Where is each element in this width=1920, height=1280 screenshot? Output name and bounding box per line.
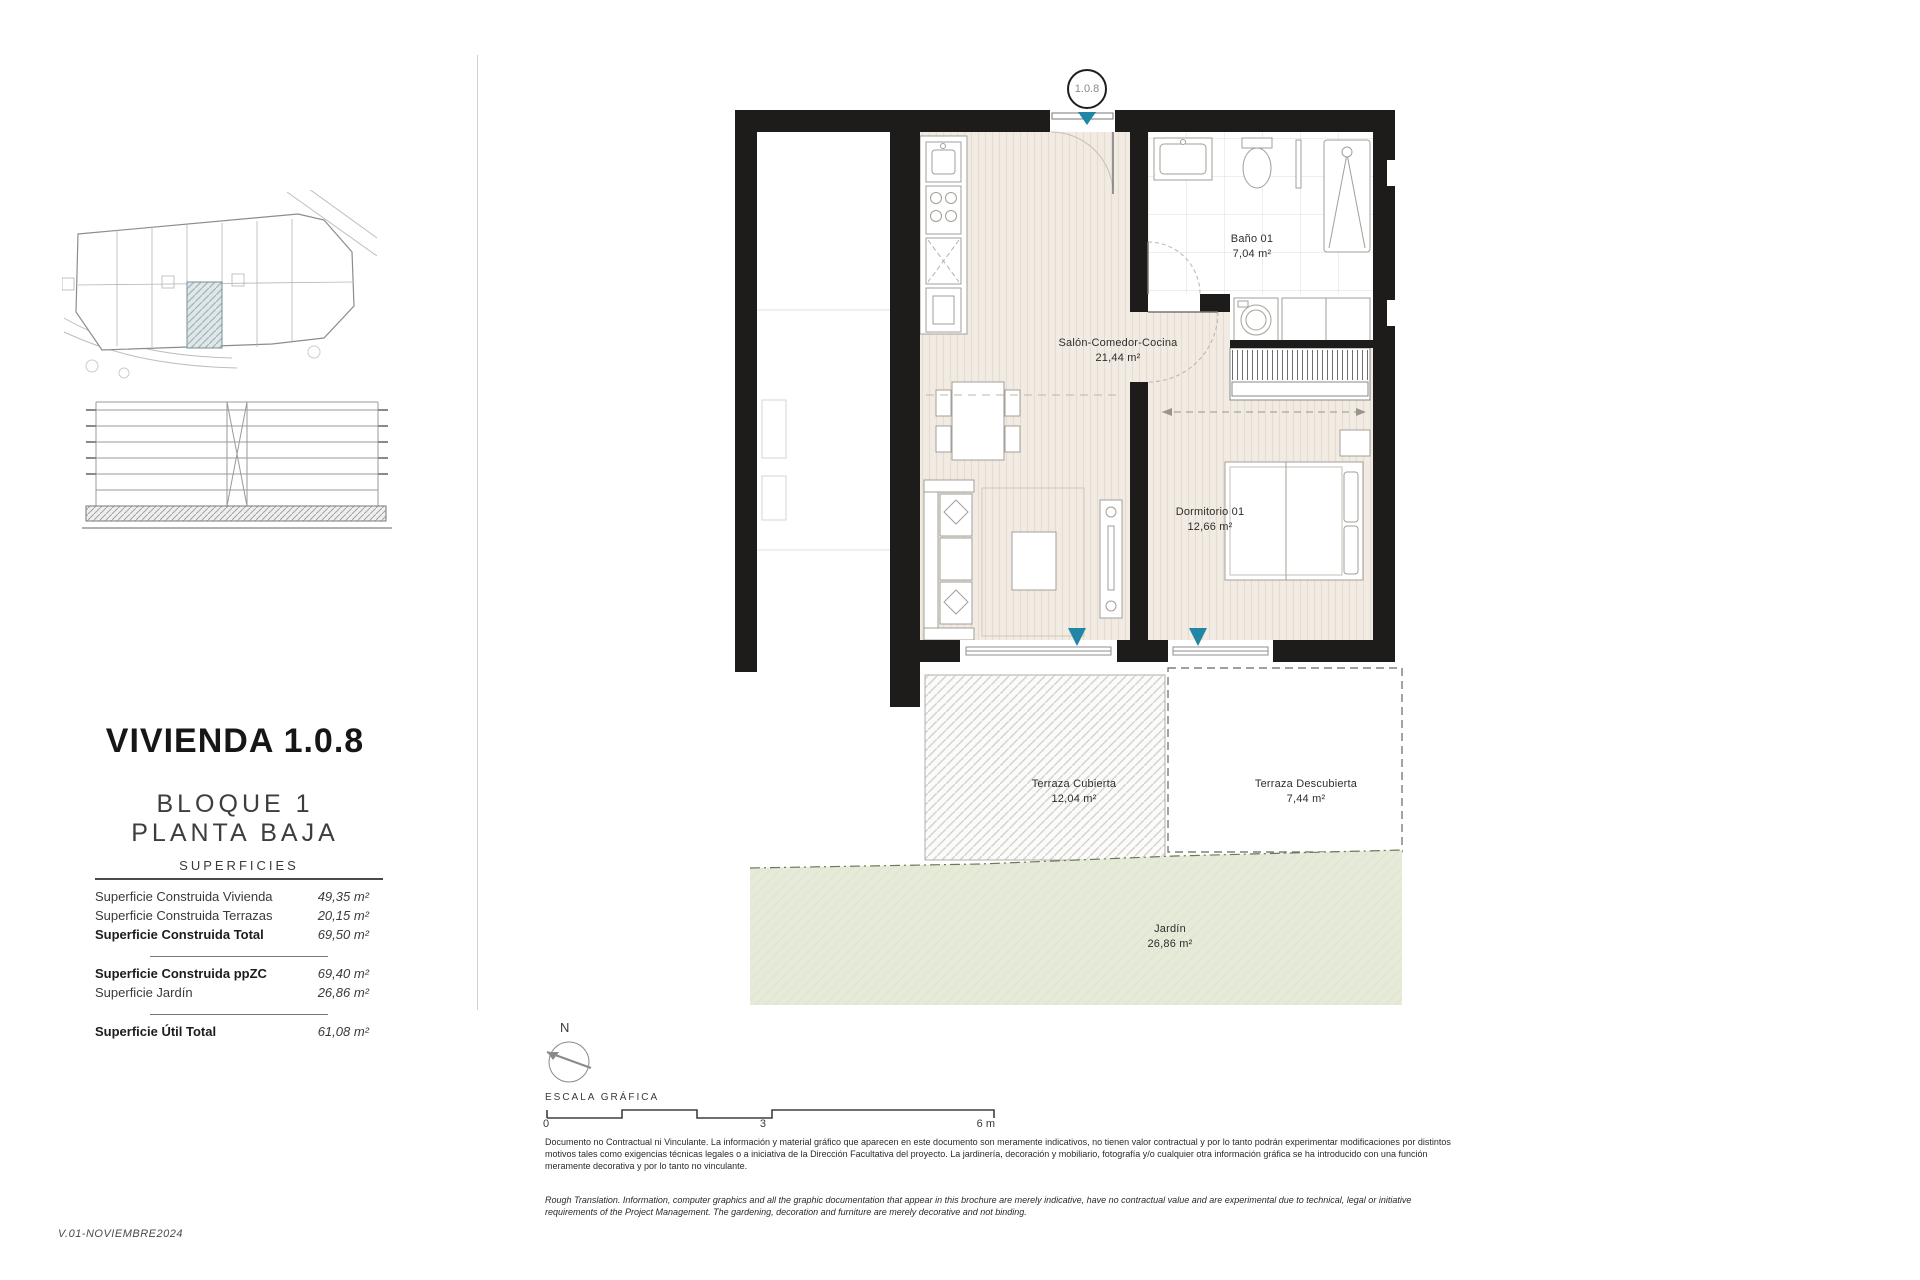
room-name: Jardín xyxy=(1080,922,1260,937)
table-row: Superficie Construida Terrazas 20,15 m² xyxy=(95,908,383,927)
row-value: 61,08 m² xyxy=(318,1024,369,1039)
version-stamp: V.01-NOVIEMBRE2024 xyxy=(58,1228,183,1240)
room-label-terraza-cubierta: Terraza Cubierta 12,04 m² xyxy=(984,777,1164,807)
unit-badge: 1.0.8 xyxy=(1067,69,1107,125)
room-area: 12,66 m² xyxy=(1120,520,1300,535)
scale-ticks: 0 3 6 m xyxy=(543,1118,995,1130)
scale-tick: 3 xyxy=(760,1118,766,1130)
room-name: Baño 01 xyxy=(1162,232,1342,247)
row-label: Superficie Útil Total xyxy=(95,1024,216,1039)
sofa xyxy=(924,480,974,640)
towel-rail xyxy=(1296,140,1301,188)
disclaimer-english: Rough Translation. Information, computer… xyxy=(545,1194,1445,1218)
column-divider xyxy=(477,55,478,1010)
table-row: Superficie Construida ppZC 69,40 m² xyxy=(95,966,383,985)
room-label-bano: Baño 01 7,04 m² xyxy=(1162,232,1342,262)
page-subtitle: BLOQUE 1 PLANTA BAJA xyxy=(30,790,440,848)
disclaimer-spanish: Documento no Contractual ni Vinculante. … xyxy=(545,1136,1465,1172)
table-row: Superficie Construida Vivienda 49,35 m² xyxy=(95,889,383,908)
laundry-counter xyxy=(1282,298,1370,342)
room-name: Dormitorio 01 xyxy=(1120,505,1300,520)
scale-tick: 0 xyxy=(543,1118,549,1130)
page-title: VIVIENDA 1.0.8 xyxy=(30,722,440,761)
room-name: Salón-Comedor-Cocina xyxy=(1028,336,1208,351)
room-area: 26,86 m² xyxy=(1080,937,1260,952)
common-zone-lines xyxy=(757,310,890,550)
row-value: 69,50 m² xyxy=(318,927,369,942)
kitchen-counter xyxy=(920,136,967,334)
unit-badge-label: 1.0.8 xyxy=(1075,83,1099,95)
window-notch xyxy=(1387,160,1395,186)
bedroom-slider-door xyxy=(1168,640,1273,662)
table-row: Superficie Útil Total 61,08 m² xyxy=(95,1024,383,1043)
highlighted-unit xyxy=(187,282,222,348)
block-label: BLOQUE 1 xyxy=(30,790,440,819)
room-label-salon: Salón-Comedor-Cocina 21,44 m² xyxy=(1028,336,1208,366)
unit-badge-circle: 1.0.8 xyxy=(1067,69,1107,109)
room-label-dormitorio: Dormitorio 01 12,66 m² xyxy=(1120,505,1300,535)
terrace-covered-area xyxy=(925,675,1165,860)
floor-label: PLANTA BAJA xyxy=(30,819,440,848)
room-area: 7,04 m² xyxy=(1162,247,1342,262)
living-slider-door xyxy=(960,640,1117,662)
table-divider xyxy=(150,956,329,957)
row-label: Superficie Construida Vivienda xyxy=(95,889,273,904)
site-plan-drawing xyxy=(62,190,377,395)
row-value: 49,35 m² xyxy=(318,889,369,904)
row-value: 69,40 m² xyxy=(318,966,369,981)
room-name: Terraza Cubierta xyxy=(984,777,1164,792)
nightstand xyxy=(1340,430,1370,456)
row-label: Superficie Construida Total xyxy=(95,927,264,942)
row-value: 20,15 m² xyxy=(318,908,369,923)
room-area: 7,44 m² xyxy=(1216,792,1396,807)
room-name: Terraza Descubierta xyxy=(1216,777,1396,792)
garden-area xyxy=(750,850,1402,1005)
superficies-header: SUPERFICIES xyxy=(95,858,383,880)
floor-plan-sheet: VIVIENDA 1.0.8 BLOQUE 1 PLANTA BAJA SUPE… xyxy=(0,0,1920,1280)
room-area: 12,04 m² xyxy=(984,792,1164,807)
superficies-table: SUPERFICIES Superficie Construida Vivien… xyxy=(95,858,383,1043)
window-notch xyxy=(1387,300,1395,326)
radiator xyxy=(1100,500,1122,618)
terrace-open-area xyxy=(1168,668,1402,852)
toilet xyxy=(1242,138,1272,188)
room-label-terraza-descubierta: Terraza Descubierta 7,44 m² xyxy=(1216,777,1396,807)
washing-machine xyxy=(1234,298,1278,342)
table-divider xyxy=(150,1014,329,1015)
elevation-drawing xyxy=(82,388,392,548)
north-compass-icon xyxy=(535,1030,605,1097)
row-label: Superficie Construida Terrazas xyxy=(95,908,273,923)
entrance-arrow-icon xyxy=(1078,112,1096,125)
row-label: Superficie Construida ppZC xyxy=(95,966,267,981)
room-area: 21,44 m² xyxy=(1028,351,1208,366)
scale-tick: 6 m xyxy=(977,1118,995,1130)
table-row: Superficie Construida Total 69,50 m² xyxy=(95,927,383,946)
coffee-table xyxy=(1012,532,1056,590)
row-label: Superficie Jardín xyxy=(95,985,193,1000)
wardrobe xyxy=(1230,348,1370,400)
table-row: Superficie Jardín 26,86 m² xyxy=(95,985,383,1004)
bathroom-sink xyxy=(1154,138,1212,180)
row-value: 26,86 m² xyxy=(318,985,369,1000)
room-label-jardin: Jardín 26,86 m² xyxy=(1080,922,1260,952)
